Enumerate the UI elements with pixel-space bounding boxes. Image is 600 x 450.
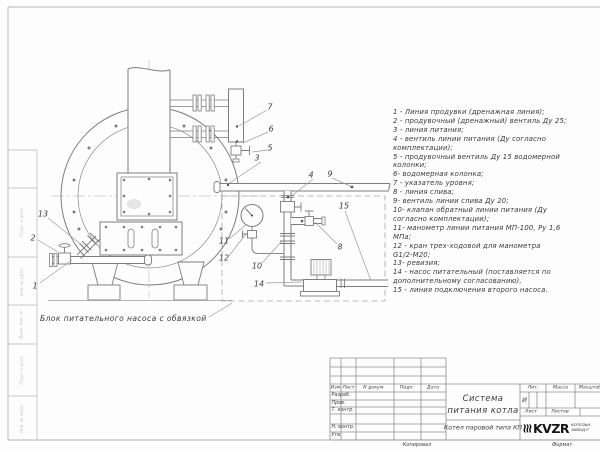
tb-row-t-kontr: Т. контр. [332, 408, 354, 413]
callout-4: 4 [308, 171, 313, 180]
margin-label-3: Взам. инв. № [19, 310, 24, 338]
manufacturer-logo: ≋ KVZR КОТЕЛЬН ЗАВОД Р [521, 417, 600, 439]
legend-list: 1 - Линия продувки (дренажная линия); 2 … [393, 108, 599, 295]
boiler-supports [48, 262, 232, 301]
tb-format: Формат [552, 442, 572, 448]
legend-item: 11- манометр линии питания МП-100, Ру 1,… [393, 224, 599, 242]
feed-pump [301, 260, 389, 297]
callout-10: 10 [252, 262, 262, 271]
callout-3: 3 [254, 154, 259, 163]
tb-row-n-kontr: Н. контр. [332, 425, 355, 430]
legend-item: 4 - вентиль линии питания (Ду согласно к… [393, 135, 599, 153]
legend-item: 3 - линия питания; [393, 126, 599, 135]
callout-6: 6 [268, 125, 273, 134]
callout-14: 14 [254, 280, 264, 289]
legend-item: 14 - насос питательный (поставляется по … [393, 268, 599, 286]
margin-label-1: Подп. и дата [19, 208, 24, 237]
tb-massa-label: Масса [553, 386, 568, 391]
tb-row-razrab: Разраб. [332, 393, 351, 398]
callout-13: 13 [38, 210, 48, 219]
tb-row-prov: Пров. [332, 401, 346, 406]
legend-item: 2 - продувочный (дренажный) вентиль Ду 2… [393, 117, 599, 126]
margin-label-5: Инв. № подл. [19, 404, 24, 433]
kvzr-sub-line2: ЗАВОД Р [571, 428, 590, 433]
callout-9: 9 [327, 170, 332, 179]
tb-kopiroval: Копировал [403, 442, 432, 448]
tb-lit-value: И [522, 396, 527, 404]
tb-product: Котел паровой типа КП [444, 425, 522, 432]
tb-listov-label: Листов [551, 410, 569, 415]
tb-lit-label: Лит. [528, 386, 539, 391]
kvzr-logo-subtext: КОТЕЛЬН ЗАВОД Р [571, 423, 590, 432]
chimney [128, 68, 170, 173]
tb-col-izm: Изм [331, 386, 341, 391]
tb-col-podp: Подп. [400, 386, 414, 391]
legend-item: 12 - кран трех-ходовой для манометра G1/… [393, 242, 599, 260]
callout-1: 1 [32, 282, 37, 291]
tb-masshtab-label: Масштаб [579, 386, 600, 391]
callout-15: 15 [339, 202, 349, 211]
drawing-sheet: 1 2 3 4 5 6 7 8 9 10 11 12 13 14 15 Блок… [0, 0, 600, 450]
legend-item: 6- водомерная колонка; [393, 170, 599, 179]
legend-item: 9- вентиль линии слива Ду 20; [393, 197, 599, 206]
callout-11: 11 [219, 237, 229, 246]
legend-item: 15 - линия подключения второго насоса. [393, 286, 599, 295]
legend-item: 8 - линия слива; [393, 188, 599, 197]
kvzr-logo-icon: ≋ [521, 422, 536, 434]
legend-item: 13- ревизия; [393, 259, 599, 268]
margin-label-4: Подп. и дата [19, 356, 24, 385]
callout-7: 7 [267, 103, 272, 112]
callout-2: 2 [30, 234, 35, 243]
legend-item: 10- клапан обратный линии питания (Ду со… [393, 206, 599, 224]
manhole-hatch [117, 173, 177, 220]
margin-label-2: Инв. № дубл. [19, 267, 24, 296]
callout-12: 12 [219, 254, 229, 263]
legend-item: 1 - Линия продувки (дренажная линия); [393, 108, 599, 117]
tb-col-doc: N докум. [363, 386, 385, 391]
callout-5: 5 [267, 144, 272, 153]
tb-col-data: Дата [427, 386, 439, 391]
burner-plate [100, 222, 182, 255]
legend-item: 5 - продувочный вентиль Ду 15 водомерной… [393, 153, 599, 171]
tb-list-label: Лист [525, 410, 537, 415]
legend-item: 7 - указатель уровня; [393, 179, 599, 188]
tb-title-line1: Система [463, 394, 504, 404]
pump-block-caption: Блок питательного насоса с обвязкой [40, 314, 207, 323]
kvzr-logo-text: KVZR [533, 421, 569, 436]
callout-8: 8 [337, 243, 342, 252]
tb-row-utv: Утв. [332, 433, 342, 438]
tb-col-list: Лист [343, 386, 355, 391]
tb-title-line2: питания котла [447, 406, 518, 416]
feed-line [214, 182, 390, 193]
